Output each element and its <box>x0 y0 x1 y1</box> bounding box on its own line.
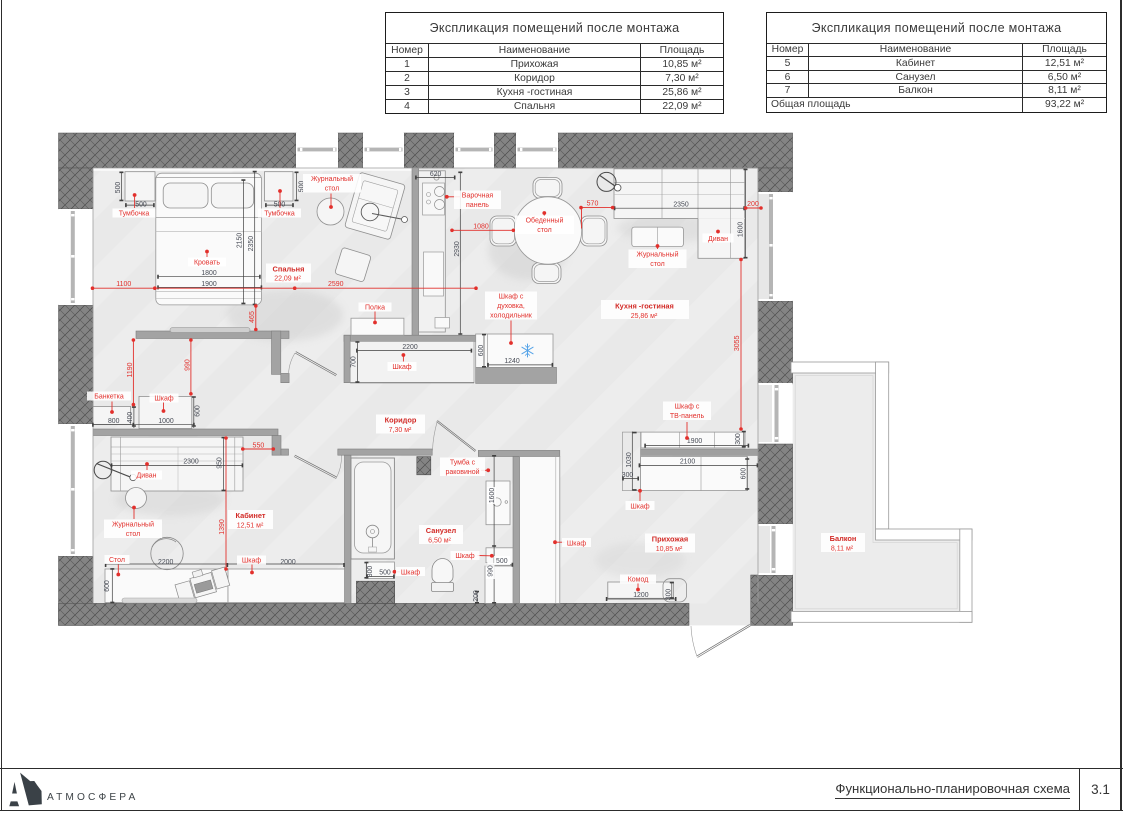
svg-text:1600: 1600 <box>489 488 496 503</box>
svg-text:1190: 1190 <box>127 362 134 377</box>
svg-text:1080: 1080 <box>473 224 489 231</box>
svg-text:2350: 2350 <box>248 236 255 251</box>
svg-text:Обеденный: Обеденный <box>526 217 564 225</box>
svg-text:990: 990 <box>184 359 191 371</box>
svg-text:Журнальный: Журнальный <box>637 251 679 259</box>
svg-text:Банкетка: Банкетка <box>94 394 124 401</box>
svg-text:Тумбочка: Тумбочка <box>119 210 150 218</box>
svg-text:2930: 2930 <box>454 241 461 256</box>
svg-text:25,86 м²: 25,86 м² <box>631 313 658 320</box>
svg-text:Тумба с: Тумба с <box>450 459 476 467</box>
svg-text:12,51 м²: 12,51 м² <box>237 523 264 530</box>
svg-text:1000: 1000 <box>158 418 173 425</box>
svg-text:620: 620 <box>430 171 442 178</box>
svg-text:Шкаф: Шкаф <box>392 364 412 371</box>
svg-text:400: 400 <box>127 412 134 424</box>
svg-text:300: 300 <box>622 472 634 479</box>
svg-text:Стол: Стол <box>109 557 125 564</box>
svg-text:Журнальный: Журнальный <box>112 521 154 529</box>
svg-text:Шкаф с: Шкаф с <box>675 404 700 411</box>
svg-text:600: 600 <box>104 580 111 592</box>
svg-text:стол: стол <box>126 531 140 538</box>
svg-text:2300: 2300 <box>183 458 198 465</box>
svg-text:2100: 2100 <box>680 458 695 465</box>
svg-text:10,85 м²: 10,85 м² <box>656 546 683 553</box>
svg-text:ТВ-панель: ТВ-панель <box>670 413 705 420</box>
svg-text:1200: 1200 <box>633 592 648 599</box>
svg-text:2590: 2590 <box>328 281 344 288</box>
svg-text:700: 700 <box>351 356 358 368</box>
svg-text:Кровать: Кровать <box>194 260 220 267</box>
svg-text:Тумбочка: Тумбочка <box>264 210 295 218</box>
svg-text:Полка: Полка <box>365 305 385 312</box>
svg-text:300: 300 <box>367 566 374 578</box>
svg-text:1100: 1100 <box>116 281 131 288</box>
svg-text:Кухня -гостиная: Кухня -гостиная <box>615 302 674 311</box>
svg-text:Шкаф: Шкаф <box>630 503 650 510</box>
svg-text:Шкаф: Шкаф <box>567 540 587 547</box>
svg-text:Санузел: Санузел <box>426 526 457 535</box>
svg-text:панель: панель <box>466 202 489 209</box>
svg-text:500: 500 <box>135 202 147 209</box>
svg-text:465: 465 <box>249 311 256 323</box>
svg-text:600: 600 <box>194 405 201 417</box>
svg-text:Журнальный: Журнальный <box>311 175 353 183</box>
svg-text:300: 300 <box>666 589 673 601</box>
svg-text:2350: 2350 <box>673 201 688 208</box>
svg-text:2000: 2000 <box>280 559 295 566</box>
svg-text:2200: 2200 <box>158 559 173 566</box>
svg-text:Шкаф с: Шкаф с <box>499 294 524 301</box>
svg-text:990: 990 <box>487 565 494 577</box>
svg-text:духовка,: духовка, <box>497 303 525 310</box>
svg-text:2150: 2150 <box>237 233 244 248</box>
svg-text:300: 300 <box>735 433 742 445</box>
svg-text:200: 200 <box>473 590 480 602</box>
svg-text:600: 600 <box>478 345 485 357</box>
svg-text:2200: 2200 <box>402 344 417 351</box>
svg-text:1900: 1900 <box>687 438 702 445</box>
svg-text:Варочная: Варочная <box>462 193 494 200</box>
svg-text:Шкаф: Шкаф <box>455 553 475 560</box>
svg-text:1900: 1900 <box>201 281 216 288</box>
svg-text:стол: стол <box>537 227 551 234</box>
svg-text:600: 600 <box>741 468 748 480</box>
svg-text:1800: 1800 <box>201 270 216 277</box>
svg-text:холодильник: холодильник <box>490 312 533 319</box>
svg-text:200: 200 <box>747 201 759 208</box>
svg-text:8,11 м²: 8,11 м² <box>831 546 854 553</box>
svg-text:800: 800 <box>108 418 120 425</box>
svg-text:1390: 1390 <box>219 519 226 535</box>
svg-text:550: 550 <box>253 443 265 450</box>
svg-text:Спальня: Спальня <box>273 265 305 274</box>
svg-text:500: 500 <box>115 182 122 194</box>
svg-text:Комод: Комод <box>628 577 649 584</box>
svg-text:Кабинет: Кабинет <box>236 511 266 520</box>
svg-text:22,09 м²: 22,09 м² <box>274 276 301 283</box>
svg-text:570: 570 <box>587 201 599 208</box>
svg-text:500: 500 <box>379 570 391 577</box>
svg-text:950: 950 <box>216 457 223 469</box>
svg-text:Балкон: Балкон <box>830 534 857 543</box>
svg-text:7,30 м²: 7,30 м² <box>389 427 412 434</box>
svg-text:1240: 1240 <box>504 358 519 365</box>
svg-text:6,50 м²: 6,50 м² <box>428 538 451 545</box>
svg-text:Шкаф: Шкаф <box>242 558 262 565</box>
svg-text:Прихожая: Прихожая <box>652 535 688 544</box>
svg-text:Шкаф: Шкаф <box>154 396 174 403</box>
svg-text:Шкаф: Шкаф <box>401 569 421 576</box>
svg-text:стол: стол <box>650 261 664 268</box>
svg-text:500: 500 <box>496 558 508 565</box>
svg-text:стол: стол <box>325 186 339 193</box>
svg-text:Диван: Диван <box>136 473 156 480</box>
svg-text:3055: 3055 <box>734 335 741 351</box>
svg-text:Диван: Диван <box>708 236 728 243</box>
svg-text:1600: 1600 <box>737 222 744 237</box>
svg-text:раковиной: раковиной <box>445 468 479 476</box>
svg-text:1030: 1030 <box>626 452 633 467</box>
svg-text:Коридор: Коридор <box>385 416 417 425</box>
